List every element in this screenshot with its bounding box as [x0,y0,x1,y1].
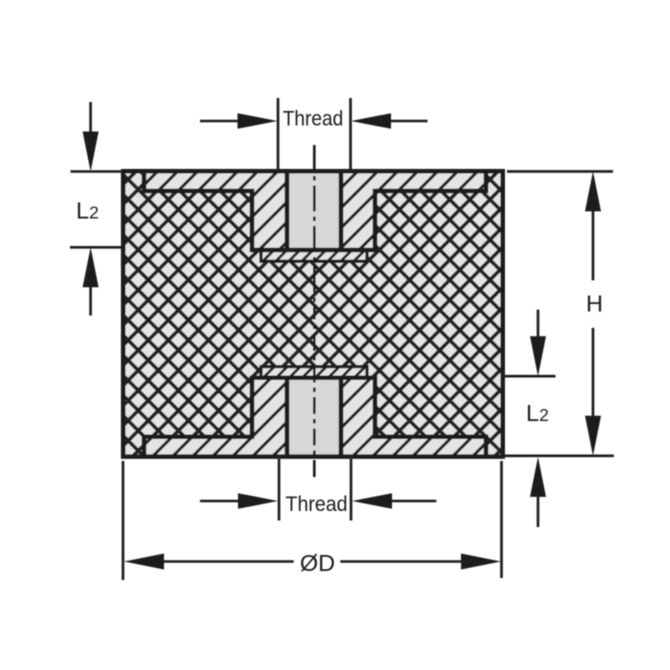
svg-text:Thread: Thread [286,493,348,516]
svg-text:H: H [586,291,603,317]
svg-text:ØD: ØD [300,550,335,576]
svg-text:Thread: Thread [283,108,344,131]
